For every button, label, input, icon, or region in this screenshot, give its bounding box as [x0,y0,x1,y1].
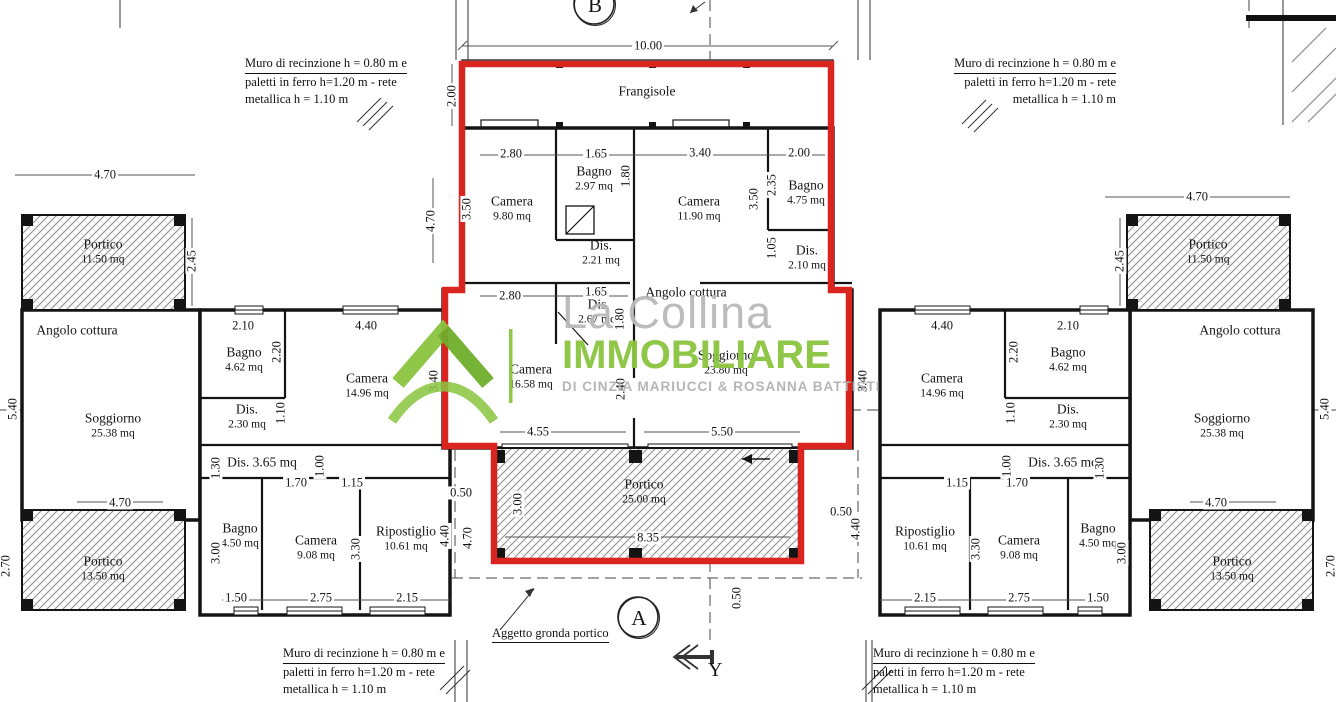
note-line: paletti in ferro h=1.20 m - rete [873,665,1025,679]
section-marker-a: A [618,597,660,639]
note-line: Muro di recinzione h = 0.80 m e [245,55,407,74]
axis-y-label: Y [708,659,722,682]
note-line: metallica h = 1.10 m [1013,92,1116,106]
note-line: paletti in ferro h=1.20 m - rete [245,75,397,89]
note-line: Muro di recinzione h = 0.80 m e [954,55,1116,74]
note-line: Muro di recinzione h = 0.80 m e [283,645,445,664]
note-line: metallica h = 1.10 m [283,682,386,696]
right-wing-walls [880,215,1313,615]
note-line: Muro di recinzione h = 0.80 m e [873,645,1035,664]
fence-note-bottom-right: Muro di recinzione h = 0.80 m e paletti … [873,645,1035,697]
note-line: paletti in ferro h=1.20 m - rete [964,75,1116,89]
plan-linework [0,0,1336,702]
left-wing-walls [22,215,450,615]
fence-note-bottom-left: Muro di recinzione h = 0.80 m e paletti … [283,645,445,697]
central-unit-walls [443,60,852,562]
note-line: paletti in ferro h=1.20 m - rete [283,665,435,679]
fence-note-top-right: Muro di recinzione h = 0.80 m e paletti … [888,55,1116,107]
aggetto-callout: Aggetto gronda portico [492,626,609,643]
note-line: metallica h = 1.10 m [245,92,348,106]
floor-plan: Portico11.50 mqAngolo cotturaSoggiorno25… [0,0,1336,702]
fence-note-top-left: Muro di recinzione h = 0.80 m e paletti … [245,55,407,107]
note-line: metallica h = 1.10 m [873,682,976,696]
